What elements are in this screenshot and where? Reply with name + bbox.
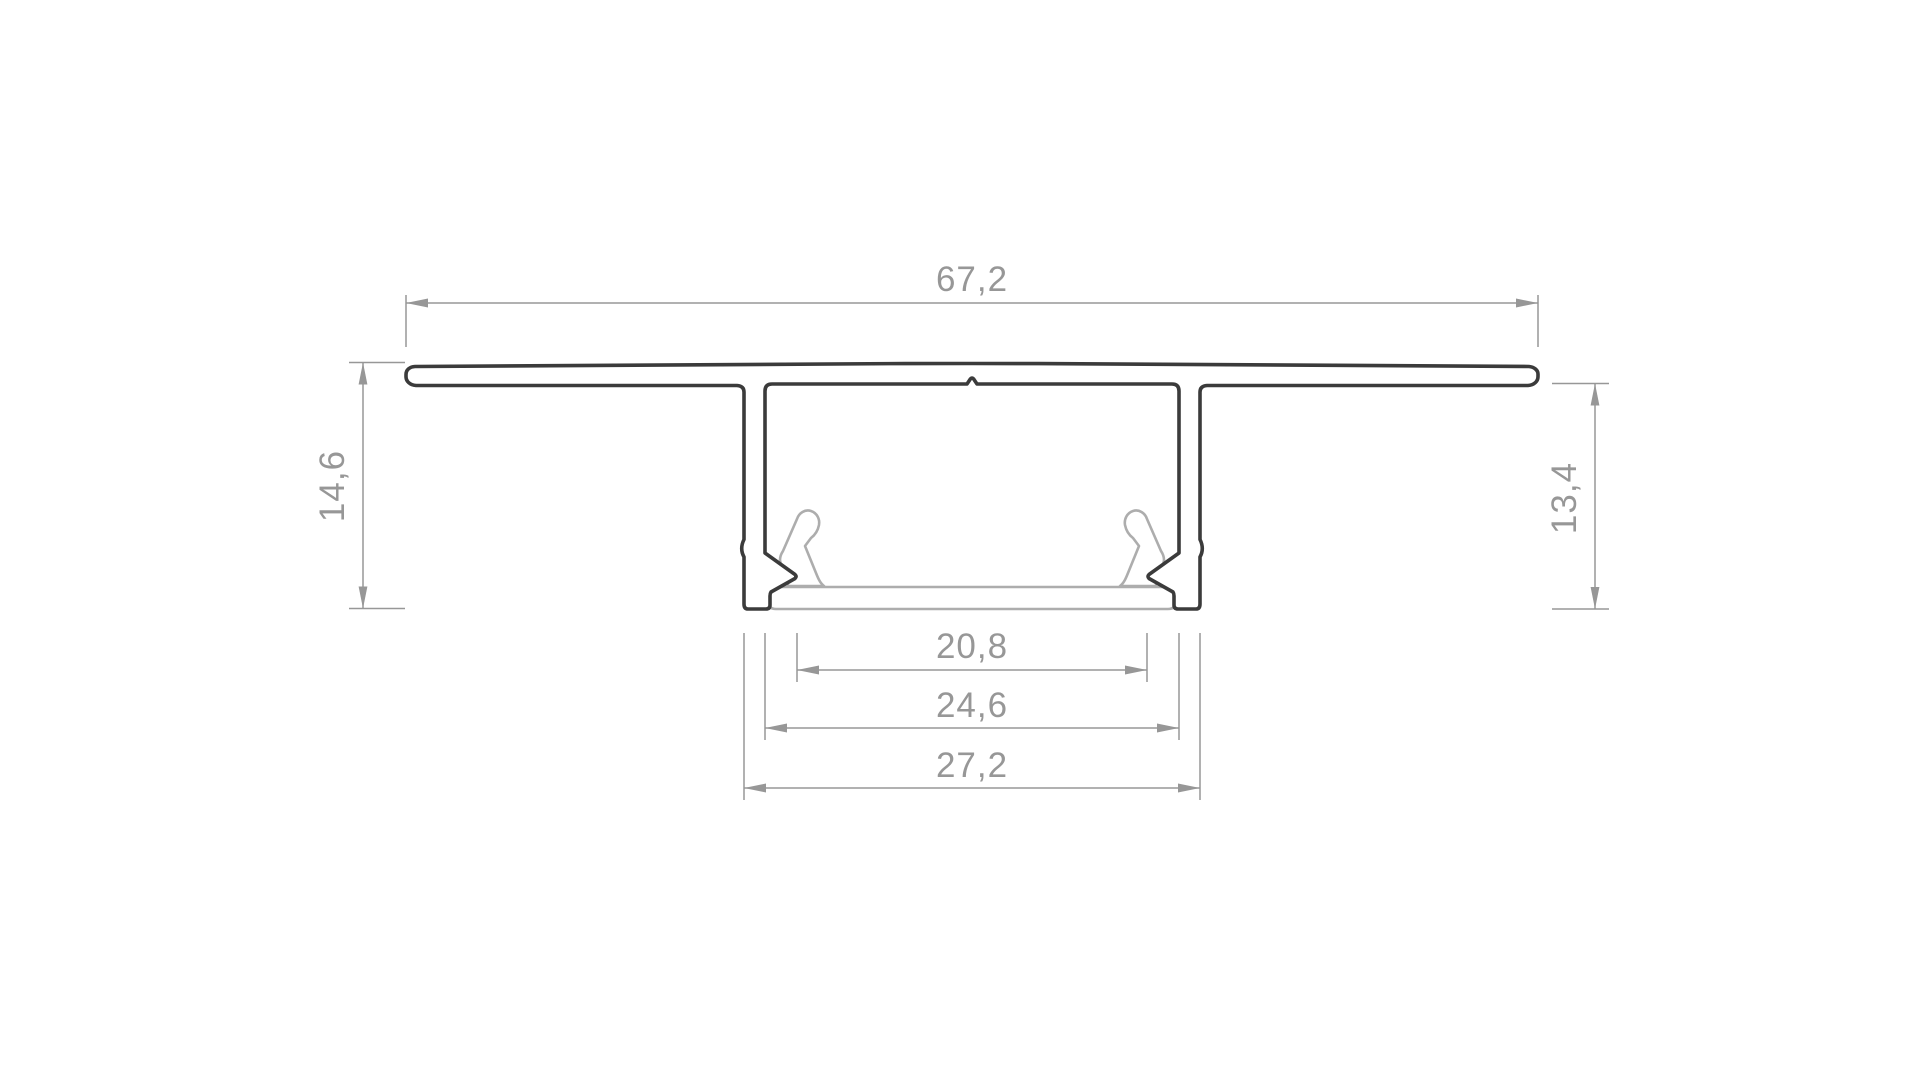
arrow-right-icon — [1516, 299, 1538, 308]
dim-label-bottom-outer-width: 27,2 — [936, 746, 1008, 785]
arrow-up-icon — [1591, 384, 1600, 406]
channel-base-plate — [768, 587, 1176, 609]
arrow-right-icon — [1157, 724, 1179, 733]
dim-left-height: 14,6 — [313, 363, 405, 609]
arrow-left-icon — [744, 784, 766, 793]
dim-label-right-height: 13,4 — [1545, 462, 1584, 534]
dim-label-bottom-middle-width: 24,6 — [936, 686, 1008, 725]
arrow-up-icon — [359, 363, 368, 385]
profile-outline — [406, 364, 1538, 610]
dim-right-height: 13,4 — [1545, 384, 1609, 610]
arrow-left-icon — [406, 299, 428, 308]
profile-technical-drawing: 67,2 14,6 13,4 20,8 24,6 — [0, 0, 1920, 1082]
dim-label-bottom-inner-width: 20,8 — [936, 627, 1008, 666]
dim-label-left-height: 14,6 — [313, 450, 352, 522]
arrow-left-icon — [765, 724, 787, 733]
arrow-left-icon — [797, 666, 819, 675]
arrow-down-icon — [359, 587, 368, 609]
dim-label-top-width: 67,2 — [936, 260, 1008, 299]
arrow-right-icon — [1125, 666, 1147, 675]
arrow-down-icon — [1591, 587, 1600, 609]
dim-top-width: 67,2 — [406, 260, 1538, 347]
arrow-right-icon — [1178, 784, 1200, 793]
dim-bottom-inner-width: 20,8 — [797, 627, 1147, 682]
drawing-canvas: 67,2 14,6 13,4 20,8 24,6 — [0, 0, 1920, 1082]
